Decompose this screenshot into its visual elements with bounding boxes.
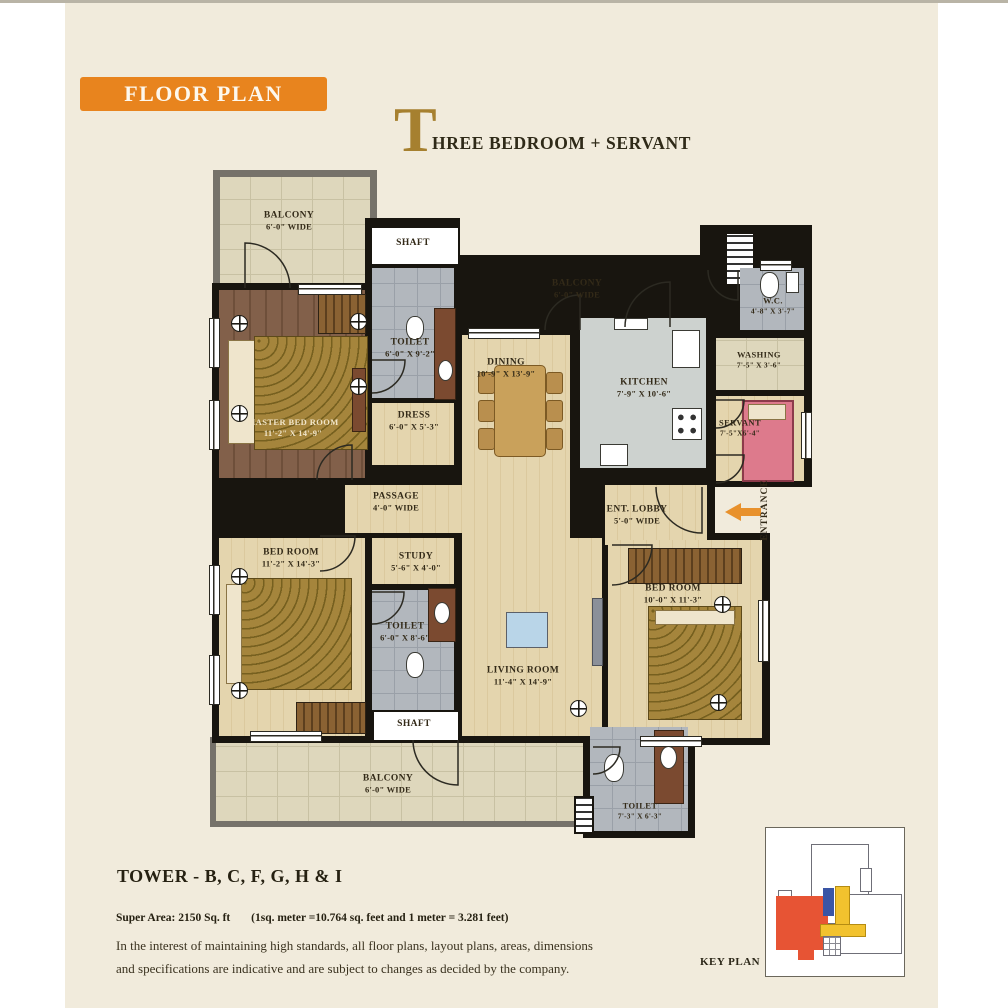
key-plan-label: KEY PLAN [700,956,760,968]
toilet-mid-basin [434,602,450,624]
super-area-value: Super Area: 2150 Sq. ft [116,912,230,924]
room-label-master-bedroom: MASTER BED ROOM11'-2" X 14'-9" [247,417,338,439]
bedroom-right-wardrobe [628,548,742,584]
room-label-bedroom-right: BED ROOM10'-0" X 11'-3" [644,582,702,605]
window [758,600,769,662]
bedroom-left-bed [240,578,352,690]
wc-pan [760,272,779,298]
column-marker-icon [710,694,727,711]
window [250,731,322,742]
floor-plan-page: FLOOR PLAN T HREE BEDROOM + SERVANT [0,0,1008,1008]
title-dropcap: T [394,98,437,162]
room-label-living: LIVING ROOM11'-4" X 14'-9" [487,664,559,687]
toilet-bottom-wc-pan [604,754,624,782]
dining-chair [478,428,495,450]
tv-cabinet [592,598,603,666]
column-marker-icon [231,315,248,332]
column-marker-icon [231,405,248,422]
room-label-servant: SERVANT7'-5"X6'-4" [719,418,761,439]
dining-chair [546,372,563,394]
conversion-note: (1sq. meter =10.764 sq. feet and 1 meter… [251,912,508,924]
kitchen-window-sink [614,318,648,330]
column-marker-icon [350,313,367,330]
dining-chair [546,400,563,422]
room-label-bedroom-left: BED ROOM11'-2" X 14'-3" [262,546,320,569]
toilet-bottom-basin [660,746,677,769]
window [298,284,362,295]
room-label-washing: WASHING7'-5" X 3'-6" [737,350,781,371]
window [209,400,220,450]
hall-connector [462,477,570,541]
room-label-kitchen: KITCHEN7'-9" X 10'-6" [617,376,671,399]
room-label-balcony-bottom: BALCONY6'-0" WIDE [363,772,413,795]
dining-chair [546,428,563,450]
kitchen-sink [600,444,628,466]
column-marker-icon [570,700,587,717]
room-label-ent-lobby: ENT. LOBBY5'-0" WIDE [607,503,668,526]
floor-plan-banner-label: FLOOR PLAN [124,81,283,107]
window [640,736,702,747]
tower-label: TOWER - B, C, F, G, H & I [117,866,343,887]
dining-chair [478,400,495,422]
room-label-shaft-top: SHAFT [396,237,430,249]
room-label-balcony-top-middle: BALCONY6'-0" WIDE [552,277,602,300]
key-plan-highlight-tab [798,946,814,960]
toilet-top-vanity [434,308,456,400]
room-label-balcony-top-left: BALCONY6'-0" WIDE [264,209,314,232]
column-marker-icon [714,596,731,613]
hob [672,408,702,440]
room-label-wc: W.C.4'-8" X 3'-7" [751,296,795,317]
key-plan-highlight-unit [776,896,828,950]
disclaimer-line-2: and specifications are indicative and ar… [116,961,569,977]
floor-plan-banner: FLOOR PLAN [80,77,327,111]
room-label-toilet-bottom: TOILET7'-3" X 6'-3" [618,801,662,822]
left-margin [0,0,65,1008]
window [209,318,220,368]
page-title: HREE BEDROOM + SERVANT [432,133,691,154]
window [209,655,220,705]
key-plan-box [765,827,905,977]
room-label-passage: PASSAGE4'-0" WIDE [373,490,419,513]
window [801,412,812,459]
window [760,260,792,271]
room-label-shaft-bottom: SHAFT [397,718,431,730]
entrance-label: ENTRANCE [760,479,770,540]
room-label-dress: DRESS6'-0" X 5'-3" [389,409,439,432]
entrance-arrow-icon [725,503,741,521]
key-plan-grid-cells [823,936,841,956]
right-margin [938,0,1008,1008]
bedroom-left-pillows [226,584,242,684]
disclaimer-line-1: In the interest of maintaining high stan… [116,938,593,954]
column-marker-icon [231,568,248,585]
entrance-arrow-tail [741,508,761,516]
top-border-line [0,0,1008,3]
window [468,328,540,339]
fridge [672,330,700,368]
room-label-dining: DINING10'-9" X 13'-9" [477,356,536,379]
column-marker-icon [350,378,367,395]
toilet-mid-wc-pan [406,652,424,678]
coffee-table [506,612,548,648]
wc-basin [786,272,799,293]
toilet-top-basin [438,360,453,381]
key-plan-building-outline [860,868,872,892]
room-label-study: STUDY5'-6" X 4'-0" [391,550,441,573]
column-marker-icon [231,682,248,699]
super-area-line: Super Area: 2150 Sq. ft (1sq. meter =10.… [116,912,508,924]
room-label-toilet-top: TOILET6'-0" X 9'-2" [385,336,435,359]
shaft-grill-bottom [574,796,594,834]
window [209,565,220,615]
bedroom-left-wardrobe [296,702,366,734]
room-label-toilet-middle: TOILET6'-0" X 8'-6" [380,620,430,643]
key-plan-blue-unit [823,888,834,916]
